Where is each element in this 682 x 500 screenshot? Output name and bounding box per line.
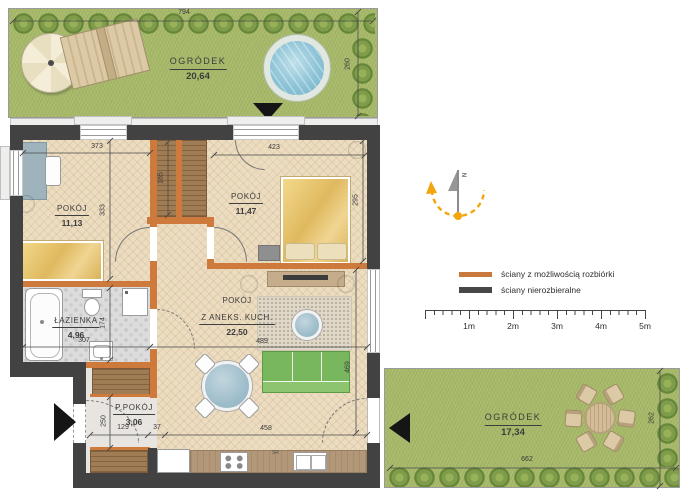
- tv-icon: [283, 275, 328, 280]
- sink-basin: [93, 345, 111, 358]
- floor-plan-canvas: OGRÓDEK 20,64: [0, 0, 682, 500]
- removable-wall: [176, 140, 182, 217]
- sofa-seat: [263, 381, 349, 392]
- shrub-row-icon: [387, 465, 679, 487]
- pillow-icon: [285, 243, 315, 260]
- coffee-table-icon: [292, 310, 322, 340]
- dresser-icon: [258, 245, 280, 261]
- dim-label: 37: [153, 424, 161, 431]
- dim-label: 307: [78, 337, 90, 344]
- dim-label: 423: [268, 144, 280, 151]
- scale-bar: 1m 2m 3m 4m 5m: [425, 310, 646, 336]
- window: [367, 269, 380, 353]
- lounger-table-icon: [96, 27, 117, 80]
- garden-bottom-name: OGRÓDEK: [485, 412, 542, 426]
- garden-top-label: OGRÓDEK 20,64: [170, 50, 227, 83]
- garden-table-icon: [584, 402, 616, 434]
- dim-label: 333: [100, 204, 107, 216]
- fridge-icon: [157, 449, 190, 473]
- removable-wall: [90, 447, 150, 450]
- kitchen-appliance-label: SR: [272, 450, 279, 456]
- door-opening: [207, 227, 214, 259]
- dim-label: 174: [100, 317, 107, 329]
- garden-chair-icon: [617, 409, 636, 428]
- plant-icon: [337, 275, 355, 293]
- sink-basin: [311, 455, 326, 470]
- removable-wall: [150, 140, 157, 287]
- bathroom-sink-icon: [89, 341, 113, 361]
- garden-bottom-area: 17,34: [485, 427, 542, 439]
- compass-north-label: N: [460, 173, 466, 177]
- removable-wall: [86, 362, 157, 368]
- dim-label: 794: [178, 9, 190, 16]
- dim-label: 129: [117, 424, 129, 431]
- legend-row-removable: ściany z możliwością rozbiórki: [459, 269, 614, 279]
- fixed-wall-bottom: [73, 473, 380, 488]
- garden-top-area: 20,64: [170, 71, 227, 83]
- scale-label: 1m: [463, 321, 475, 331]
- sofa-icon: [262, 351, 350, 393]
- hall-name: P.POKÓJ: [113, 403, 155, 415]
- room1-name: POKÓJ: [55, 204, 89, 216]
- scale-label: 2m: [507, 321, 519, 331]
- dim-label: 489: [256, 338, 268, 345]
- scale-bar-ticks: [425, 310, 646, 319]
- dim-label: 469: [345, 361, 352, 373]
- removable-wall: [150, 362, 157, 398]
- room2-area: 11,47: [229, 206, 263, 217]
- scale-label: 5m: [639, 321, 651, 331]
- kitchen-sink-icon: [293, 452, 327, 471]
- sofa-seam: [292, 352, 293, 382]
- bathtub-drain-icon: [40, 320, 44, 324]
- umbrella-hub-icon: [48, 60, 54, 66]
- stove-icon: [220, 452, 248, 472]
- dim-label: 260: [345, 58, 352, 70]
- fixed-wall-swatch-icon: [459, 287, 492, 293]
- garden-chair-icon: [564, 409, 582, 427]
- room2-label: POKÓJ 11,47: [229, 185, 263, 217]
- window-sill: [74, 116, 132, 125]
- shrub-column-icon: [655, 371, 679, 467]
- washer-knob-icon: [125, 291, 128, 294]
- toilet-tank-icon: [82, 289, 102, 298]
- room2-name: POKÓJ: [229, 192, 263, 204]
- living-label: POKÓJ Z ANEKS. KUCH. 22,50: [199, 296, 275, 338]
- dim-label: 185: [158, 172, 165, 184]
- garden-bottom-label: OGRÓDEK 17,34: [485, 406, 542, 439]
- plant-icon: [348, 141, 366, 159]
- legend-removable-label: ściany z możliwością rozbiórki: [501, 269, 614, 279]
- removable-wall: [23, 281, 157, 287]
- dim-label: 662: [521, 456, 533, 463]
- door-opening: [150, 227, 157, 261]
- dim-label: 262: [649, 412, 656, 424]
- window: [10, 150, 23, 196]
- legend-fixed-label: ściany nierozbieralne: [501, 285, 581, 295]
- dim-label: 373: [91, 143, 103, 150]
- bathroom-area: 4,96: [52, 330, 99, 341]
- living-name-line2: Z ANEKS. KUCH.: [199, 313, 275, 325]
- sink-tap-icon: [100, 357, 103, 360]
- garden-door: [367, 398, 380, 443]
- shrub-column-icon: [350, 36, 375, 116]
- removable-wall: [147, 217, 214, 224]
- window-sill: [0, 146, 10, 200]
- compass-icon: [426, 170, 484, 220]
- removable-wall-swatch-icon: [459, 272, 492, 277]
- legend-row-fixed: ściany nierozbieralne: [459, 285, 614, 295]
- hall-wardrobe-icon: [92, 368, 150, 396]
- removable-wall: [207, 263, 367, 269]
- bathroom-name: ŁAZIENKA: [52, 316, 99, 328]
- pool-icon: [264, 35, 330, 101]
- garden-chair-icon: [602, 430, 625, 453]
- scale-label: 3m: [551, 321, 563, 331]
- scale-label: 4m: [595, 321, 607, 331]
- living-area: 22,50: [199, 327, 275, 338]
- bathroom-label: ŁAZIENKA 4,96: [52, 309, 99, 341]
- washer-icon: [122, 288, 148, 316]
- terrace-door: [233, 125, 299, 140]
- door-opening: [150, 309, 157, 349]
- fixed-wall-top: [10, 125, 380, 140]
- window-sill: [227, 116, 305, 125]
- hall-wardrobe-icon: [90, 450, 148, 473]
- dim-label: 250: [101, 415, 108, 427]
- pillow-icon: [317, 243, 347, 260]
- entrance-arrow-left-icon: [54, 403, 76, 441]
- sink-basin: [296, 455, 311, 470]
- room1-area: 11,13: [55, 218, 89, 229]
- shrub-row-icon: [11, 11, 375, 36]
- fixed-wall-bath-bottom: [10, 362, 86, 377]
- dim-label: 458: [260, 425, 272, 432]
- room1-label: POKÓJ 11,13: [55, 197, 89, 229]
- window: [80, 125, 127, 140]
- entrance-arrow-bottom-icon: [389, 413, 410, 443]
- legend: ściany z możliwością rozbiórki ściany ni…: [459, 269, 614, 301]
- living-name-line1: POKÓJ: [199, 296, 275, 306]
- desk-chair-icon: [45, 156, 61, 186]
- single-bed-icon: [18, 241, 103, 281]
- garden-top-name: OGRÓDEK: [170, 56, 227, 70]
- plant-icon: [240, 275, 258, 293]
- dim-label: 295: [353, 194, 360, 206]
- hall-label: P.POKÓJ 3,06: [113, 396, 155, 428]
- fixed-wall-stub: [148, 448, 157, 473]
- sofa-seam: [321, 352, 322, 382]
